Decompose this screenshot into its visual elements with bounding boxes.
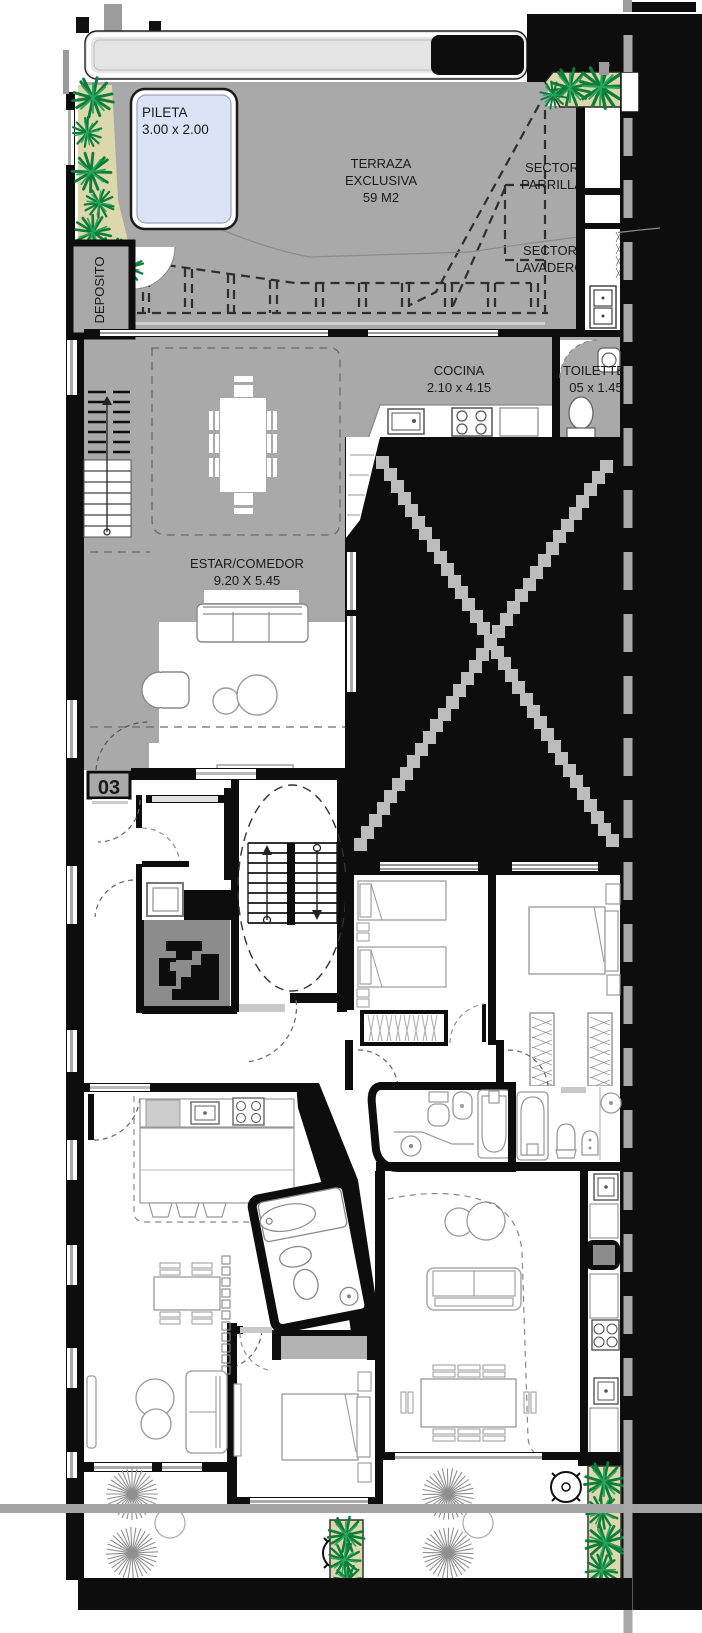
svg-text:SECTOR: SECTOR (523, 243, 577, 258)
svg-text:EXCLUSIVA: EXCLUSIVA (345, 173, 417, 188)
svg-text:05 x 1.45: 05 x 1.45 (569, 380, 623, 395)
svg-text:TOILETTE: TOILETTE (563, 363, 625, 378)
svg-text:COCINA: COCINA (434, 363, 485, 378)
svg-text:03: 03 (98, 777, 120, 799)
svg-text:3.00 x 2.00: 3.00 x 2.00 (142, 122, 209, 137)
svg-text:LAVADERO: LAVADERO (516, 260, 585, 275)
svg-text:PILETA: PILETA (142, 105, 188, 120)
svg-text:DEPOSITO: DEPOSITO (92, 257, 107, 324)
svg-text:TERRAZA: TERRAZA (351, 156, 412, 171)
svg-text:59 M2: 59 M2 (363, 190, 399, 205)
svg-text:SECTOR: SECTOR (525, 160, 579, 175)
svg-text:PARRILLA: PARRILLA (521, 177, 583, 192)
svg-text:9.20 X 5.45: 9.20 X 5.45 (214, 573, 281, 588)
svg-text:2.10 x 4.15: 2.10 x 4.15 (427, 380, 491, 395)
svg-text:ESTAR/COMEDOR: ESTAR/COMEDOR (190, 556, 304, 571)
